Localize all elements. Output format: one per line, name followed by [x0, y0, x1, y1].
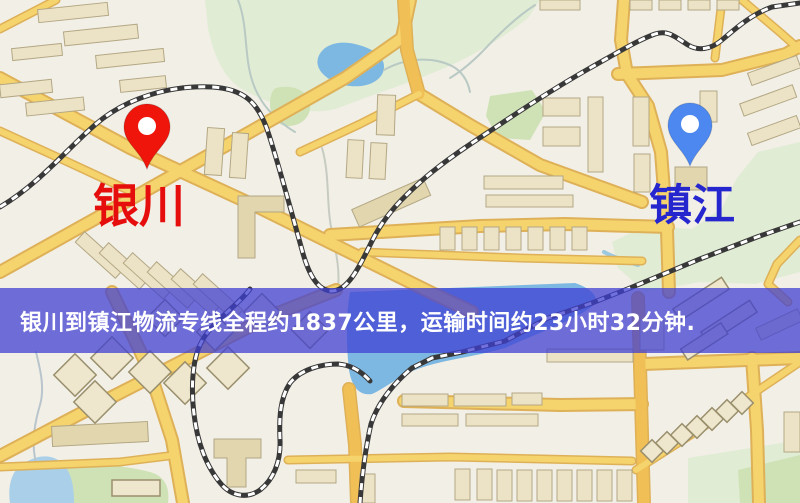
zhenjiang-location-pin-icon[interactable] — [668, 103, 712, 166]
yinchuan-location-pin-icon[interactable] — [124, 104, 170, 169]
pins-overlay — [0, 0, 800, 503]
map-screenshot: 银川到镇江物流专线全程约1837公里，运输时间约23小时32分钟. 银川 镇江 — [0, 0, 800, 503]
